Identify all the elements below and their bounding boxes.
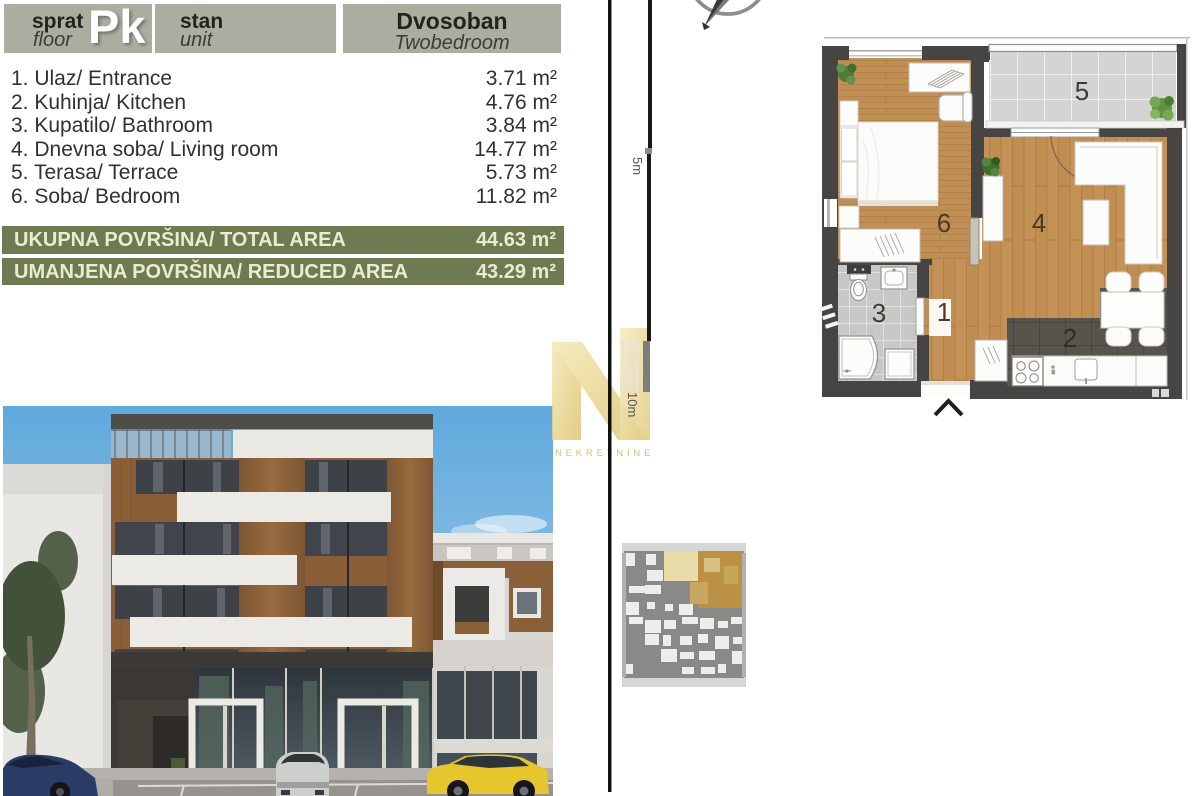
svg-text:2: 2 [1063, 323, 1077, 353]
svg-text:6: 6 [937, 208, 951, 238]
svg-text:5: 5 [1075, 76, 1089, 106]
svg-text:10m: 10m [625, 392, 640, 417]
svg-text:1: 1 [937, 297, 951, 327]
svg-text:NEKRETNINE: NEKRETNINE [555, 448, 654, 459]
svg-text:3: 3 [872, 298, 886, 328]
svg-text:4: 4 [1032, 208, 1046, 238]
svg-text:5m: 5m [630, 157, 645, 175]
